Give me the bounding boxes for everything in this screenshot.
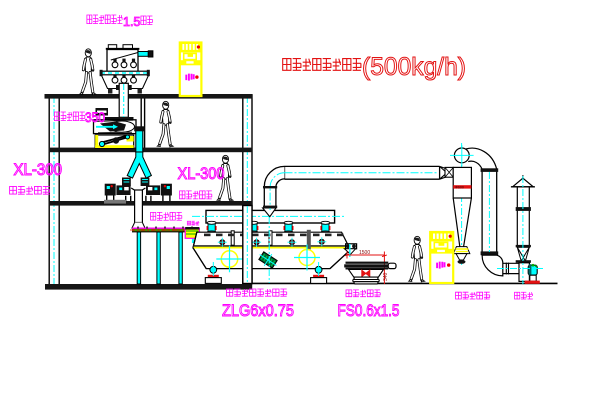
svg-text:Φ600: Φ600 — [455, 185, 464, 189]
svg-text:XL-300: XL-300 — [14, 161, 63, 179]
svg-text:350: 350 — [85, 110, 105, 125]
svg-text:(500kg/h): (500kg/h) — [362, 53, 466, 81]
svg-text:ZLG6x0.75: ZLG6x0.75 — [222, 301, 294, 320]
svg-text:1.5: 1.5 — [123, 15, 140, 29]
svg-text:1500: 1500 — [359, 250, 370, 256]
svg-text:340: 340 — [383, 272, 389, 281]
svg-text:FS0.6x1.5: FS0.6x1.5 — [338, 301, 400, 320]
svg-text:XL-300: XL-300 — [178, 165, 225, 183]
